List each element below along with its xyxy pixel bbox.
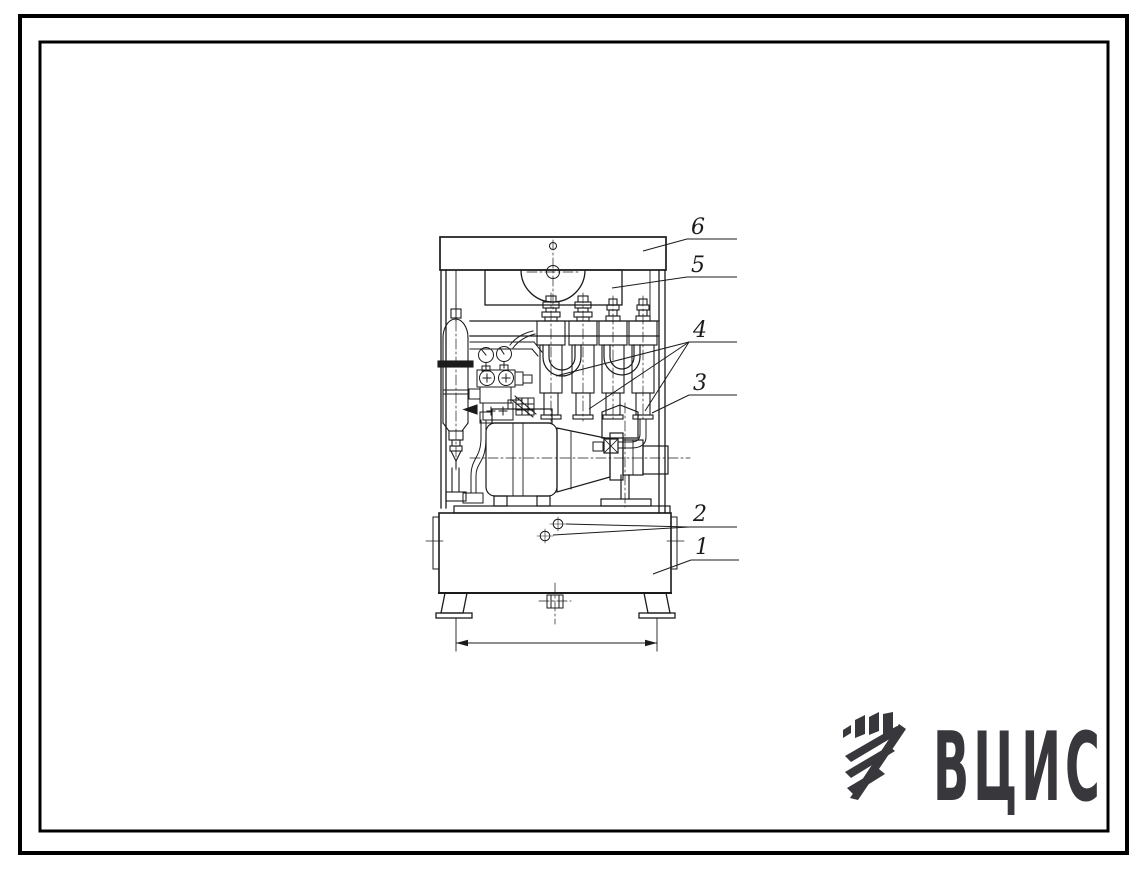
- callout-1: 1: [653, 535, 739, 574]
- clamp-band: [438, 361, 473, 367]
- filter-bank: [537, 296, 657, 419]
- logo-text: ВЦИС: [933, 711, 1104, 822]
- callout-5-label: 5: [691, 253, 705, 278]
- drawing-canvas: 6 5 4 3 2 1: [0, 0, 1139, 869]
- motor-cover: [485, 266, 622, 306]
- centerlines: [456, 240, 690, 624]
- callout-6-label: 6: [691, 215, 705, 240]
- callout-2-label: 2: [692, 502, 707, 527]
- callouts: 6 5 4 3 2 1: [553, 215, 739, 574]
- callout-4-label: 4: [692, 318, 707, 343]
- gauge-valve-assembly: [463, 331, 542, 503]
- callout-6: 6: [643, 215, 737, 251]
- bedplate: [454, 506, 670, 513]
- pump-station-drawing: [426, 237, 690, 651]
- callout-3-label: 3: [693, 371, 707, 396]
- tank-legs: [436, 593, 675, 618]
- logo: ВЦИС: [843, 711, 1104, 822]
- dimension-line: [456, 619, 657, 651]
- drawing-sheet: 6 5 4 3 2 1: [0, 0, 1139, 869]
- callout-1-label: 1: [695, 535, 709, 560]
- u-pipes: [543, 345, 640, 376]
- logo-emblem-icon: [843, 712, 906, 800]
- motor-pump-assembly: [454, 400, 670, 513]
- tank-holes: [537, 517, 566, 543]
- callout-2: 2: [553, 502, 737, 535]
